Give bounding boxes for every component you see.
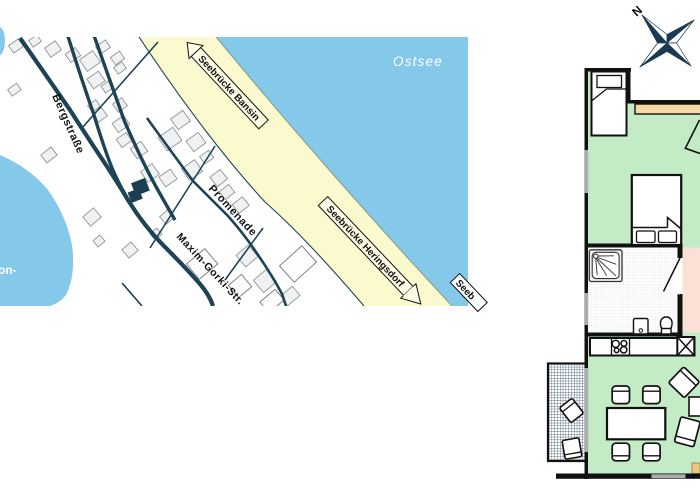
svg-text:Ostsee: Ostsee — [393, 54, 443, 69]
svg-text:on-: on- — [0, 263, 17, 277]
